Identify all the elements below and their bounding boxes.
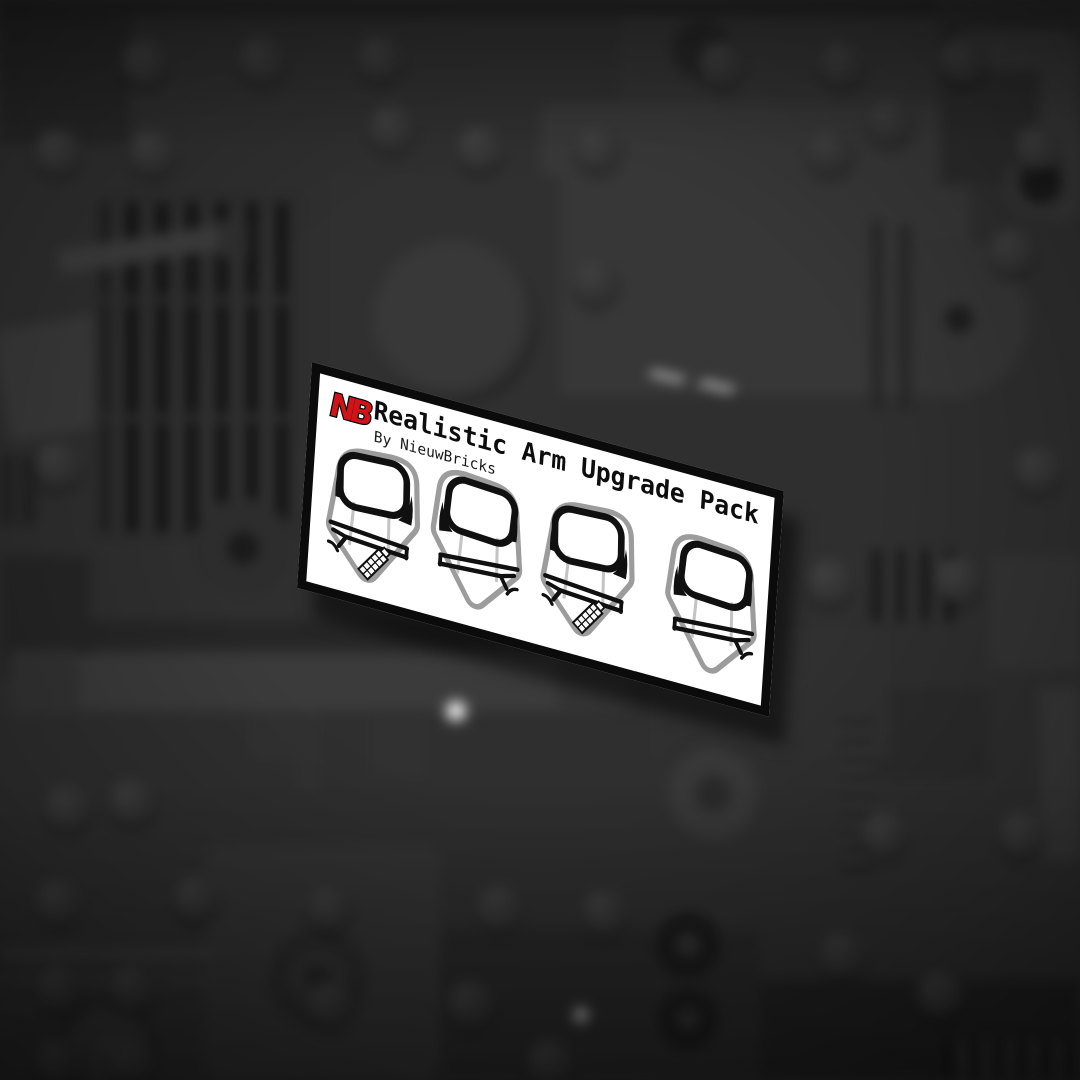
minifig-arm-left-printed-graphic (532, 490, 640, 656)
minifig-arm-right-plain-graphic (425, 463, 533, 629)
stage: NB Realistic Arm Upgrade Pack By NieuwBr… (0, 0, 1080, 1080)
minifig-arm-right-plain-graphic (659, 527, 767, 693)
minifig-arm-left-printed-graphic (317, 437, 425, 603)
